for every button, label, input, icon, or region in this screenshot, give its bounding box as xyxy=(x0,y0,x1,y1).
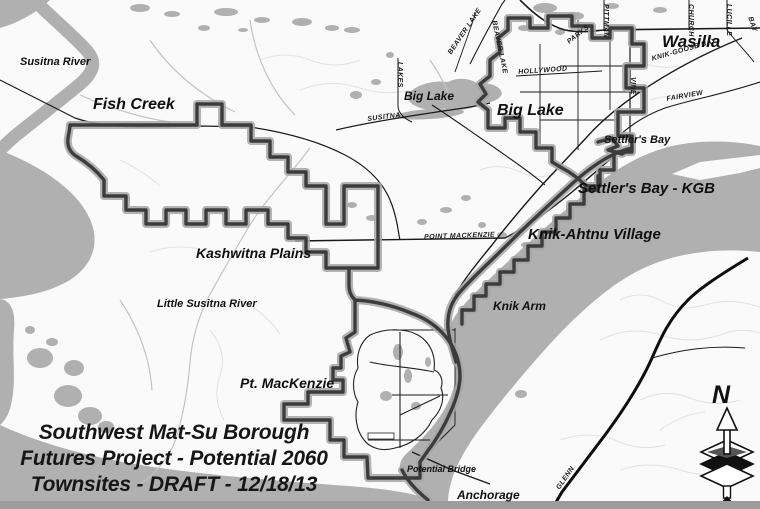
label-big-lake-water: Big Lake xyxy=(404,90,454,102)
map: Susitna River Fish Creek Big Lake Big La… xyxy=(0,0,760,509)
label-knik-ahtnu-village: Knik-Ahtnu Village xyxy=(528,227,661,242)
label-little-susitna-river: Little Susitna River xyxy=(157,299,257,310)
map-title-line3: Townsites - DRAFT - 12/18/13 xyxy=(6,472,342,498)
map-title-line2: Futures Project - Potential 2060 xyxy=(6,446,342,472)
label-settlers-bay-kgb: Settler's Bay - KGB xyxy=(578,181,715,196)
label-potential-bridge: Potential Bridge xyxy=(407,465,476,474)
label-road-pittman: PITTMAN xyxy=(602,4,609,38)
label-settlers-bay: Settler's Bay xyxy=(604,135,670,146)
footer-bar xyxy=(0,501,760,509)
label-road-lucille: LUCILLE xyxy=(725,4,732,36)
map-title: Southwest Mat-Su Borough Futures Project… xyxy=(6,420,342,498)
map-title-line1: Southwest Mat-Su Borough xyxy=(6,420,342,446)
label-road-lakes: LAKES xyxy=(396,62,403,88)
compass-north-icon xyxy=(701,408,753,509)
label-big-lake-townsite: Big Lake xyxy=(497,103,564,119)
label-susitna-river: Susitna River xyxy=(20,57,90,68)
compass-north-label: N xyxy=(712,381,730,410)
label-road-vine: VINE xyxy=(629,77,636,95)
label-kashwitna-plains: Kashwitna Plains xyxy=(196,246,311,260)
label-knik-arm: Knik Arm xyxy=(493,300,546,312)
label-anchorage: Anchorage xyxy=(457,489,520,501)
label-pt-mackenzie: Pt. MacKenzie xyxy=(240,376,334,390)
label-road-church: CHURCH xyxy=(687,4,694,37)
label-fish-creek: Fish Creek xyxy=(93,97,175,113)
